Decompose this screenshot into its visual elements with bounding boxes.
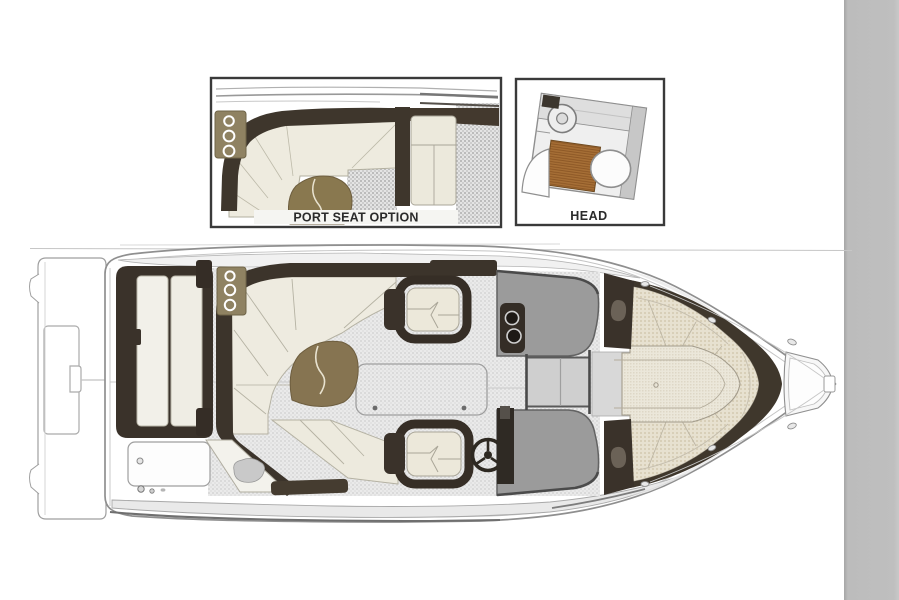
svg-text:HEAD: HEAD	[570, 209, 607, 223]
svg-text:PORT SEAT OPTION: PORT SEAT OPTION	[293, 211, 418, 225]
